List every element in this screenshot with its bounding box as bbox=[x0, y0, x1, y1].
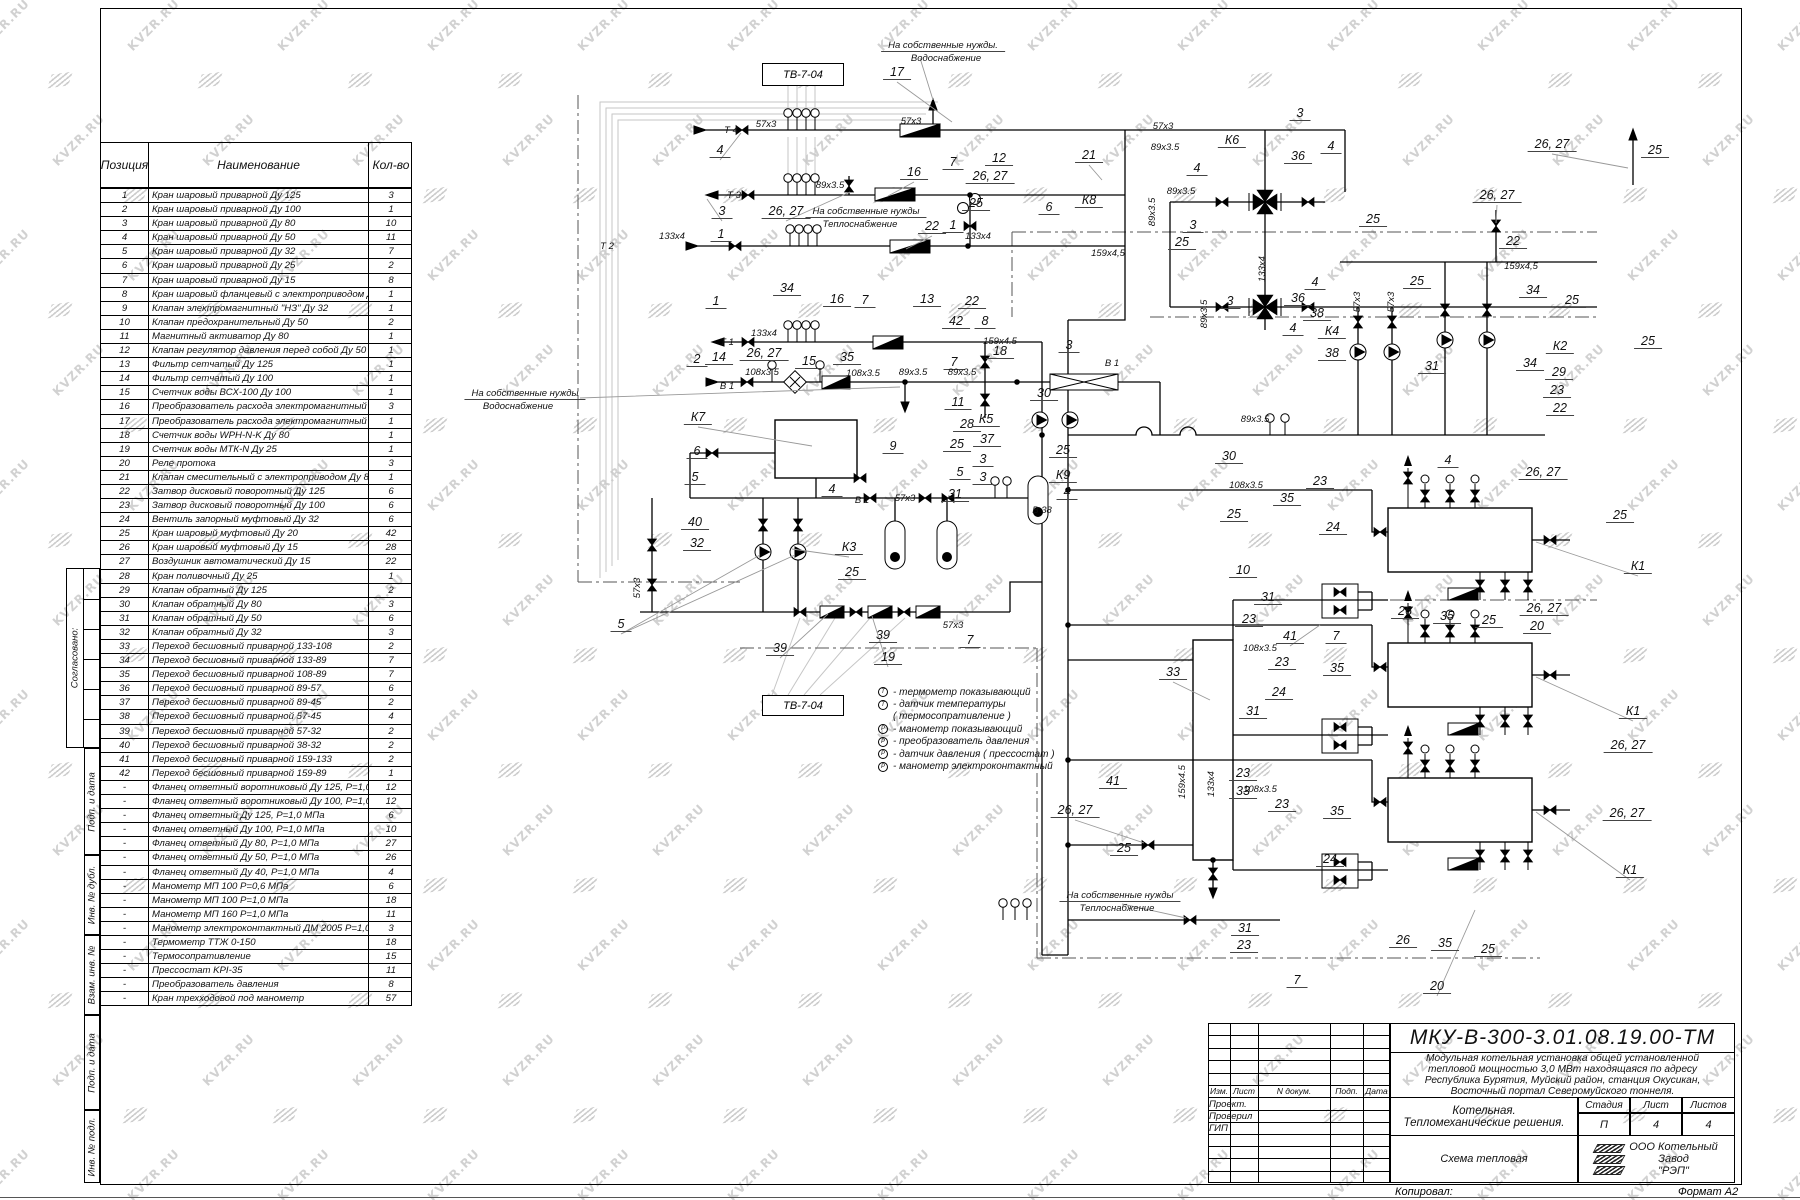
table-row: -Фланец ответный воротниковый Ду 100, P=… bbox=[101, 794, 411, 808]
stamp-podp-data-2: Подп. и дата bbox=[84, 1015, 100, 1110]
table-row: 33Переход бесшовный приварной 133-1082 bbox=[101, 639, 411, 653]
table-row: 25Кран шаровый муфтовый Ду 2042 bbox=[101, 526, 411, 540]
table-row: -Преобразователь давления8 bbox=[101, 977, 411, 991]
table-row: -Термометр ТТЖ 0-15018 bbox=[101, 935, 411, 949]
col-name: Наименование bbox=[149, 143, 369, 187]
table-row: 20Реле протока3 bbox=[101, 456, 411, 470]
spacer-icon bbox=[878, 712, 888, 722]
table-row: 8Кран шаровый фланцевый с электроприводо… bbox=[101, 287, 411, 301]
table-row: 32Клапан обратный Ду 323 bbox=[101, 625, 411, 639]
temperature-icon: Т bbox=[878, 700, 888, 710]
sheet-name-cell: Схема тепловая bbox=[1390, 1135, 1578, 1183]
table-row: -Манометр электроконтактный ДМ 2005 P=1,… bbox=[101, 921, 411, 935]
pressure-icon: Р bbox=[878, 737, 888, 747]
table-row: 36Переход бесшовный приварной 89-576 bbox=[101, 681, 411, 695]
stamp-agreed: Согласовано: bbox=[66, 568, 100, 748]
tracing-lines bbox=[600, 84, 938, 695]
table-row: -Фланец ответный Ду 80, P=1,0 МПа27 bbox=[101, 836, 411, 850]
table-row: 18Счетчик воды WPH-N-K Ду 801 bbox=[101, 428, 411, 442]
table-row: -Фланец ответный Ду 100, P=1,0 МПа10 bbox=[101, 822, 411, 836]
table-row: 38Переход бесшовный приварной 57-454 bbox=[101, 709, 411, 723]
rev-col-ndocum: N докум. bbox=[1258, 1086, 1330, 1097]
pressure-icon: Р bbox=[878, 762, 888, 772]
legend-item: Т- термометр показывающий bbox=[878, 686, 1055, 698]
company-logo bbox=[1595, 1144, 1623, 1175]
table-row: -Фланец ответный Ду 125, P=1,0 МПа6 bbox=[101, 808, 411, 822]
tv-box-bottom: ТВ-7-04 bbox=[762, 695, 844, 716]
stamp-inv-podl: Инв. № подл. bbox=[84, 1110, 100, 1183]
table-row: 39Переход бесшовный приварной 57-322 bbox=[101, 724, 411, 738]
table-row: 24Вентиль запорный муфтовый Ду 326 bbox=[101, 512, 411, 526]
rev-col-izm: Изм. bbox=[1208, 1086, 1230, 1097]
object-cell: Котельная. Тепломеханические решения. bbox=[1390, 1097, 1578, 1136]
drawing-sheet: KVZR.RUKVZR.RUKVZR.RUKVZR.RUKVZR.RUKVZR.… bbox=[0, 0, 1800, 1200]
doc-number: МКУ-В-300-3.01.08.19.00-ТМ bbox=[1410, 1026, 1715, 1050]
copied-label: Копировал: bbox=[1395, 1186, 1453, 1198]
rev-col-data: Дата bbox=[1363, 1086, 1390, 1097]
table-row: 21Клапан смесительный с электроприводом … bbox=[101, 470, 411, 484]
stage-value: П bbox=[1578, 1113, 1630, 1136]
table-row: 34Переход бесшовный приварной 133-897 bbox=[101, 653, 411, 667]
table-row: 9Клапан электромагнитный "НЗ" Ду 321 bbox=[101, 301, 411, 315]
table-row: 28Кран поливочный Ду 251 bbox=[101, 569, 411, 583]
table-row: 14Фильтр сетчатый Ду 1001 bbox=[101, 371, 411, 385]
table-row: 10Клапан предохранительный Ду 502 bbox=[101, 315, 411, 329]
sheet-label: Лист bbox=[1630, 1097, 1682, 1113]
table-row: 7Кран шаровый приварной Ду 158 bbox=[101, 273, 411, 287]
tv-box-top: ТВ-7-04 bbox=[762, 63, 844, 86]
table-row: 3Кран шаровый приварной Ду 8010 bbox=[101, 216, 411, 230]
table-row: 2Кран шаровый приварной Ду 1001 bbox=[101, 202, 411, 216]
table-row: 22Затвор дисковый поворотный Ду 1256 bbox=[101, 484, 411, 498]
table-row: 13Фильтр сетчатый Ду 1251 bbox=[101, 357, 411, 371]
rev-col-podp: Подп. bbox=[1330, 1086, 1363, 1097]
table-row: 31Клапан обратный Ду 506 bbox=[101, 611, 411, 625]
table-row: 1Кран шаровый приварной Ду 1253 bbox=[101, 188, 411, 202]
table-row: -Манометр МП 100 P=1,0 МПа18 bbox=[101, 893, 411, 907]
table-row: 17Преобразователь расхода электромагнитн… bbox=[101, 414, 411, 428]
table-row: 30Клапан обратный Ду 803 bbox=[101, 597, 411, 611]
legend-item: Р- манометр показывающий bbox=[878, 723, 1055, 735]
pressure-icon: Р bbox=[878, 724, 888, 734]
table-row: 11Магнитный активатор Ду 801 bbox=[101, 329, 411, 343]
description-cell: Модульная котельная установка общей уста… bbox=[1390, 1052, 1735, 1098]
role-gip: ГИП bbox=[1209, 1123, 1228, 1134]
temperature-icon: Т bbox=[878, 687, 888, 697]
role-proekt: Проект. bbox=[1209, 1099, 1247, 1110]
sheets-value: 4 bbox=[1682, 1113, 1735, 1136]
table-row: 37Переход бесшовный приварной 89-452 bbox=[101, 695, 411, 709]
table-row: -Манометр МП 100 P=0,6 МПа6 bbox=[101, 879, 411, 893]
parts-table: Позиция Наименование Кол-во 1Кран шаровы… bbox=[100, 142, 412, 1006]
sheets-label: Листов bbox=[1682, 1097, 1735, 1113]
table-row: 4Кран шаровый приварной Ду 5011 bbox=[101, 230, 411, 244]
legend-item: Р- манометр электроконтактный bbox=[878, 760, 1055, 772]
table-row: 16Преобразователь расхода электромагнитн… bbox=[101, 399, 411, 413]
table-row: 23Затвор дисковый поворотный Ду 1006 bbox=[101, 498, 411, 512]
sheet-value: 4 bbox=[1630, 1113, 1682, 1136]
legend-item: Р- датчик давления ( прессостат ) bbox=[878, 748, 1055, 760]
table-row: 41Переход бесшовный приварной 159-1332 bbox=[101, 752, 411, 766]
stamp-vzam-inv: Взам. инв. № bbox=[84, 935, 100, 1015]
table-row: 15Счетчик воды ВСХ-100 Ду 1001 bbox=[101, 385, 411, 399]
stage-label: Стадия bbox=[1578, 1097, 1630, 1113]
table-row: 42Переход бесшовный приварной 159-891 bbox=[101, 766, 411, 780]
table-row: -Прессостат KPI-3511 bbox=[101, 963, 411, 977]
table-row: -Фланец ответный воротниковый Ду 125, P=… bbox=[101, 780, 411, 794]
legend-item: ( термосопративление ) bbox=[878, 711, 1055, 723]
stamp-label: Согласовано: bbox=[70, 628, 81, 689]
pressure-icon: Р bbox=[878, 749, 888, 759]
table-row: -Кран трехходовой под манометр57 bbox=[101, 991, 411, 1005]
parts-table-rows: 1Кран шаровый приварной Ду 12532Кран шар… bbox=[100, 188, 412, 1006]
table-row: 5Кран шаровый приварной Ду 327 bbox=[101, 244, 411, 258]
format-label: Формат А2 bbox=[1678, 1186, 1738, 1198]
table-row: -Манометр МП 160 P=1,0 МПа11 bbox=[101, 907, 411, 921]
table-row: 27Воздушник автоматический Ду 1522 bbox=[101, 554, 411, 568]
table-row: 12Клапан регулятор давления перед собой … bbox=[101, 343, 411, 357]
doc-number-cell: МКУ-В-300-3.01.08.19.00-ТМ bbox=[1390, 1023, 1735, 1053]
col-qty: Кол-во bbox=[369, 143, 413, 187]
role-proveril: Проверил bbox=[1209, 1111, 1252, 1122]
table-row: -Фланец ответный Ду 50, P=1,0 МПа26 bbox=[101, 850, 411, 864]
table-row: 40Переход бесшовный приварной 38-322 bbox=[101, 738, 411, 752]
stamp-podp-data-1: Подп. и дата bbox=[84, 748, 100, 855]
legend-item: Р- преобразователь давления bbox=[878, 736, 1055, 748]
table-row: -Фланец ответный Ду 40, P=1,0 МПа4 bbox=[101, 865, 411, 879]
rev-col-list: Лист bbox=[1230, 1086, 1258, 1097]
col-position: Позиция bbox=[101, 143, 149, 187]
parts-table-header: Позиция Наименование Кол-во bbox=[100, 142, 412, 188]
legend-item: Т- датчик температуры bbox=[878, 698, 1055, 710]
table-row: 6Кран шаровый приварной Ду 252 bbox=[101, 258, 411, 272]
table-row: -Термосопративление15 bbox=[101, 949, 411, 963]
table-row: 35Переход бесшовный приварной 108-897 bbox=[101, 667, 411, 681]
table-row: 29Клапан обратный Ду 1252 bbox=[101, 583, 411, 597]
table-row: 26Кран шаровый муфтовый Ду 1528 bbox=[101, 540, 411, 554]
legend: Т- термометр показывающийТ- датчик темпе… bbox=[878, 686, 1055, 773]
company-cell: ООО Котельный Завод "РЭП" bbox=[1578, 1135, 1735, 1183]
table-row: 19Счетчик воды МТК-N Ду 251 bbox=[101, 442, 411, 456]
stamp-inv-dubl: Инв. № дубл. bbox=[84, 855, 100, 935]
